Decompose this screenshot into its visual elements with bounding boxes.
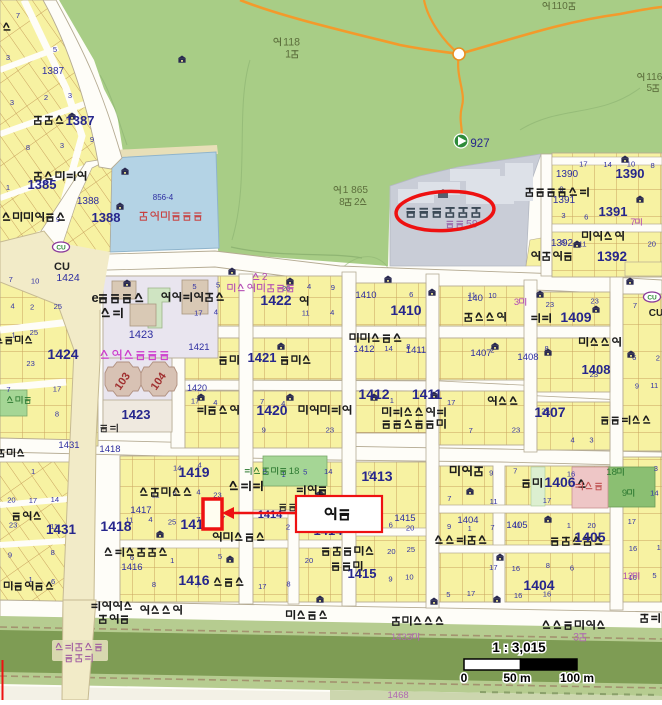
svg-text:4: 4	[307, 282, 311, 291]
svg-text:7: 7	[6, 385, 10, 394]
svg-text:16: 16	[512, 564, 520, 573]
svg-text:14: 14	[603, 160, 611, 169]
svg-text:8: 8	[546, 561, 550, 570]
svg-text:1385: 1385	[28, 177, 57, 192]
svg-text:1412: 1412	[358, 386, 389, 402]
svg-text:1 : 3,015: 1 : 3,015	[492, 640, 546, 655]
svg-text:1404: 1404	[523, 577, 554, 593]
svg-text:3: 3	[6, 53, 10, 62]
svg-text:140: 140	[467, 293, 483, 304]
svg-text:20: 20	[7, 496, 15, 505]
svg-text:9: 9	[489, 468, 493, 477]
svg-text:6: 6	[51, 577, 55, 586]
svg-text:2: 2	[262, 272, 268, 283]
svg-text:17: 17	[579, 159, 587, 168]
svg-text:1418: 1418	[100, 518, 131, 534]
svg-text:1420: 1420	[187, 383, 207, 393]
svg-text:25: 25	[407, 545, 415, 554]
svg-text:18: 18	[606, 467, 617, 478]
svg-text:856-4: 856-4	[153, 193, 174, 202]
svg-text:17: 17	[53, 384, 61, 393]
svg-text:1404: 1404	[457, 515, 478, 526]
svg-text:3: 3	[60, 141, 64, 150]
svg-text:6: 6	[584, 212, 588, 221]
svg-text:3: 3	[589, 435, 593, 444]
svg-text:9: 9	[8, 551, 12, 560]
svg-text:11: 11	[650, 381, 658, 390]
svg-text:1407: 1407	[470, 348, 491, 359]
svg-text:e: e	[92, 290, 99, 305]
svg-text:1408: 1408	[517, 352, 538, 363]
svg-text:17: 17	[29, 496, 37, 505]
svg-text:1414: 1414	[258, 509, 283, 521]
svg-text:5: 5	[218, 552, 222, 561]
svg-text:1387: 1387	[42, 66, 65, 77]
svg-text:9: 9	[635, 382, 639, 391]
svg-text:1: 1	[170, 556, 174, 565]
svg-text:1423: 1423	[122, 407, 151, 422]
svg-text:9: 9	[388, 574, 392, 583]
svg-text:14: 14	[51, 495, 59, 504]
svg-text:25: 25	[168, 517, 176, 526]
svg-text:10: 10	[405, 572, 413, 581]
svg-text:1413: 1413	[361, 468, 392, 484]
svg-text:14: 14	[324, 467, 332, 476]
svg-text:1409: 1409	[560, 309, 591, 325]
svg-text:1411: 1411	[406, 345, 426, 356]
svg-text:3: 3	[10, 98, 14, 107]
svg-text:7: 7	[9, 275, 13, 284]
svg-text:23: 23	[546, 300, 554, 309]
svg-text:1433: 1433	[391, 632, 412, 643]
svg-text:1410: 1410	[390, 302, 421, 318]
svg-text:1410: 1410	[355, 290, 376, 301]
svg-text:100 m: 100 m	[560, 671, 594, 685]
svg-text:CU: CU	[649, 308, 662, 319]
svg-text:25: 25	[30, 328, 38, 337]
svg-text:16: 16	[514, 591, 522, 600]
svg-text:1416: 1416	[121, 562, 142, 573]
svg-text:1405: 1405	[506, 520, 527, 531]
svg-text:1422: 1422	[260, 292, 291, 308]
svg-text:1388: 1388	[92, 210, 121, 225]
svg-text:50 m: 50 m	[503, 671, 530, 685]
svg-text:5: 5	[446, 590, 450, 599]
svg-text:4: 4	[330, 308, 334, 317]
svg-text:1: 1	[31, 467, 35, 476]
svg-text:10: 10	[488, 291, 496, 300]
svg-text:1424: 1424	[47, 346, 78, 362]
svg-text:8: 8	[55, 409, 59, 418]
svg-text:23: 23	[326, 425, 334, 434]
svg-text:16: 16	[629, 544, 637, 553]
svg-text:17: 17	[543, 496, 551, 505]
svg-text:1424: 1424	[56, 272, 80, 284]
svg-text:8: 8	[651, 161, 655, 170]
svg-text:1391: 1391	[553, 195, 576, 206]
svg-text:1415: 1415	[348, 566, 377, 581]
svg-text:8: 8	[152, 580, 156, 589]
svg-text:1418: 1418	[99, 444, 120, 455]
svg-text:17: 17	[489, 563, 497, 572]
svg-text:7: 7	[469, 426, 473, 435]
svg-text:1415: 1415	[394, 513, 415, 524]
svg-text:10: 10	[31, 276, 39, 285]
svg-text:1421: 1421	[188, 342, 209, 353]
svg-text:1431: 1431	[58, 440, 79, 451]
svg-text:14: 14	[650, 488, 658, 497]
svg-text:7: 7	[633, 301, 637, 310]
svg-text:6: 6	[570, 564, 574, 573]
svg-text:1406: 1406	[544, 474, 575, 490]
svg-text:8: 8	[26, 143, 30, 152]
svg-text:7: 7	[490, 523, 494, 532]
svg-text:1416: 1416	[178, 572, 209, 588]
svg-text:3: 3	[68, 91, 72, 100]
svg-text:4: 4	[196, 488, 200, 497]
svg-text:17: 17	[447, 398, 455, 407]
svg-text:3: 3	[561, 211, 565, 220]
svg-text:20: 20	[648, 239, 656, 248]
svg-text:1419: 1419	[178, 464, 209, 480]
svg-text:23: 23	[512, 425, 520, 434]
svg-text:5: 5	[192, 282, 196, 291]
svg-text:3: 3	[654, 464, 658, 473]
svg-text:7: 7	[16, 11, 20, 20]
svg-text:6: 6	[409, 290, 413, 299]
svg-text:8: 8	[286, 579, 290, 588]
svg-text:118: 118	[283, 36, 300, 48]
svg-text:1: 1	[567, 521, 571, 530]
svg-text:1: 1	[285, 48, 291, 60]
svg-text:9: 9	[622, 488, 627, 499]
svg-text:9: 9	[447, 522, 451, 531]
svg-text:11: 11	[302, 309, 310, 318]
svg-text:20: 20	[387, 547, 395, 556]
svg-text:3: 3	[573, 631, 579, 643]
svg-text:23: 23	[26, 359, 34, 368]
svg-text:1408: 1408	[582, 362, 611, 377]
svg-text:5: 5	[652, 571, 656, 580]
svg-text:4: 4	[214, 308, 218, 317]
svg-text:4: 4	[148, 515, 152, 524]
svg-text:CU: CU	[647, 294, 657, 301]
svg-text:12: 12	[623, 571, 633, 581]
svg-text:CU: CU	[56, 244, 66, 251]
svg-text:0: 0	[461, 671, 468, 685]
svg-text:927: 927	[470, 138, 489, 150]
svg-text:1 865: 1 865	[343, 185, 369, 196]
svg-text:6: 6	[389, 520, 393, 529]
svg-text:1411: 1411	[412, 386, 443, 402]
svg-text:1387: 1387	[66, 113, 95, 128]
svg-text:1392: 1392	[551, 238, 574, 249]
svg-text:1407: 1407	[534, 404, 565, 420]
svg-text:1421: 1421	[248, 350, 277, 365]
svg-text:5: 5	[647, 83, 653, 94]
svg-text:2: 2	[354, 197, 360, 208]
svg-text:2: 2	[656, 354, 660, 363]
svg-text:2: 2	[44, 93, 48, 102]
svg-text:1: 1	[6, 183, 10, 192]
svg-text:9: 9	[90, 135, 94, 144]
svg-text:14: 14	[384, 344, 392, 353]
svg-text:1417: 1417	[130, 505, 151, 516]
svg-text:17: 17	[194, 309, 202, 318]
svg-text:17: 17	[258, 582, 266, 591]
svg-text:20: 20	[406, 523, 414, 532]
svg-text:4: 4	[11, 302, 15, 311]
svg-text:1390: 1390	[616, 166, 645, 181]
svg-text:5: 5	[303, 467, 307, 476]
svg-text:1: 1	[657, 543, 661, 552]
svg-text:1468: 1468	[388, 690, 409, 700]
svg-text:3: 3	[514, 297, 519, 308]
svg-text:1392: 1392	[597, 249, 627, 264]
svg-text:9: 9	[262, 425, 266, 434]
svg-text:25: 25	[54, 302, 62, 311]
svg-text:7: 7	[630, 217, 635, 227]
svg-text:18: 18	[289, 466, 300, 477]
svg-text:1: 1	[390, 396, 394, 405]
svg-text:8: 8	[51, 548, 55, 557]
svg-text:1405: 1405	[574, 529, 605, 545]
svg-text:4: 4	[571, 435, 575, 444]
svg-text:1420: 1420	[256, 402, 287, 418]
svg-text:23: 23	[9, 521, 17, 530]
svg-text:1391: 1391	[599, 204, 628, 219]
svg-text:20: 20	[305, 556, 313, 565]
svg-text:7: 7	[447, 494, 451, 503]
svg-text:1423: 1423	[129, 329, 153, 341]
svg-text:9: 9	[331, 283, 335, 292]
svg-text:17: 17	[628, 517, 636, 526]
svg-text:17: 17	[467, 589, 475, 598]
svg-text:23: 23	[590, 297, 598, 306]
svg-text:1431: 1431	[46, 522, 77, 537]
svg-text:2: 2	[286, 522, 290, 531]
svg-text:5: 5	[53, 45, 57, 54]
svg-text:2: 2	[30, 303, 34, 312]
svg-text:116: 116	[646, 72, 662, 83]
svg-text:8: 8	[339, 197, 345, 208]
svg-text:1412: 1412	[353, 344, 374, 355]
svg-text:4: 4	[213, 398, 217, 407]
svg-text:110: 110	[552, 1, 568, 12]
svg-text:7: 7	[513, 466, 517, 475]
svg-text:11: 11	[490, 497, 498, 506]
svg-text:1388: 1388	[77, 196, 100, 207]
svg-text:5: 5	[216, 280, 220, 289]
svg-text:1390: 1390	[556, 169, 579, 180]
